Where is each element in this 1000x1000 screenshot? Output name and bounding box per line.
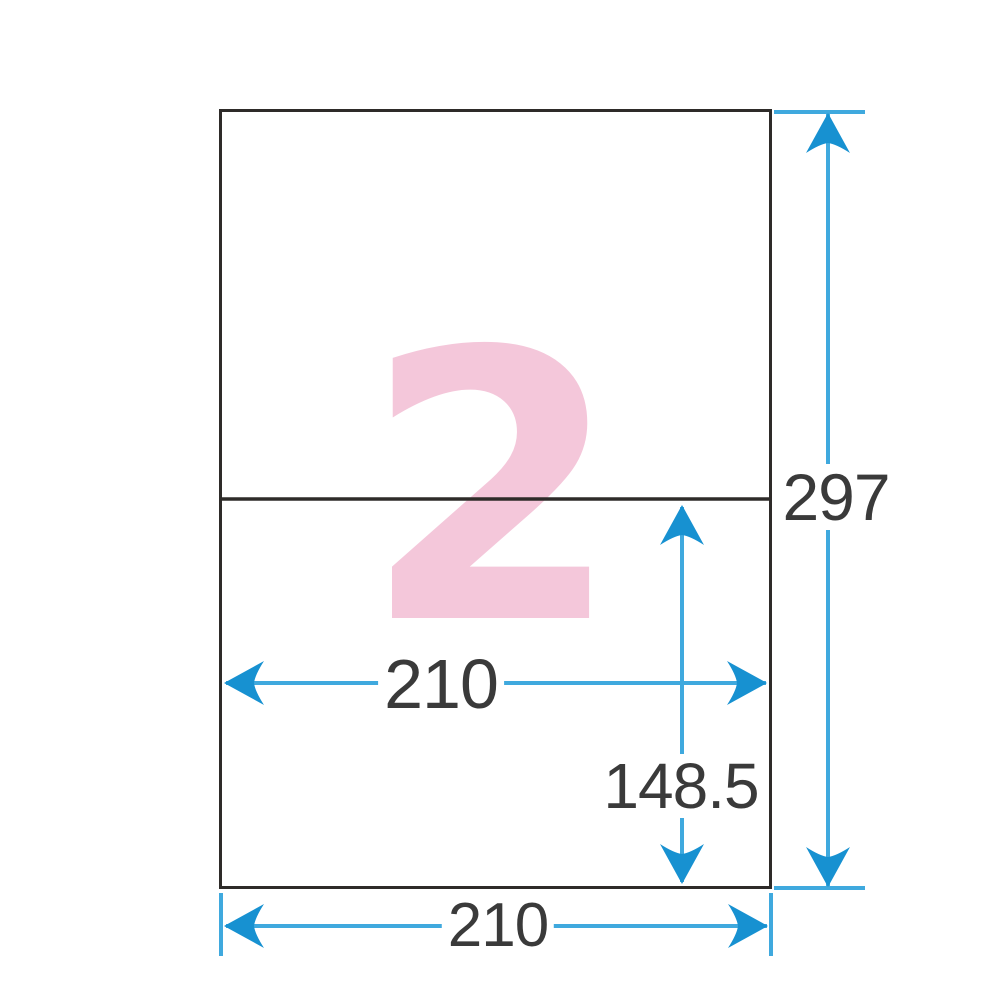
label-width-value: 210 — [378, 649, 504, 719]
label-count-numeral: 2 — [363, 273, 622, 706]
label-sheet-dimension-diagram: 2 297 210 148.5 210 — [0, 0, 1000, 1000]
sheet-height-value: 297 — [776, 464, 895, 530]
sheet-width-value: 210 — [442, 895, 554, 957]
label-height-value: 148.5 — [600, 754, 761, 818]
